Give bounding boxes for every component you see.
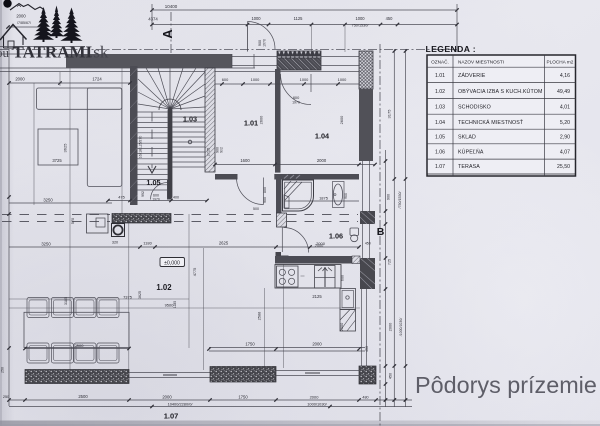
svg-text:600: 600 (153, 194, 159, 198)
svg-text:1125: 1125 (294, 16, 304, 21)
svg-text:2625: 2625 (219, 241, 229, 246)
svg-text:2588: 2588 (258, 312, 262, 320)
svg-text:3250: 3250 (43, 197, 53, 202)
svg-text:1.03: 1.03 (183, 115, 197, 124)
svg-text:B: B (377, 226, 385, 238)
svg-text:1000: 1000 (251, 16, 261, 21)
svg-text:49,49: 49,49 (557, 89, 570, 95)
svg-text:1970: 1970 (152, 198, 159, 202)
svg-text:10400: 10400 (165, 4, 178, 9)
svg-text:2000: 2000 (312, 342, 322, 347)
svg-text:SCHODISKO: SCHODISKO (458, 105, 491, 111)
svg-text:1.04: 1.04 (435, 120, 445, 126)
svg-text:2725: 2725 (207, 148, 211, 156)
svg-text:1.05: 1.05 (435, 135, 445, 141)
svg-text:480: 480 (362, 396, 368, 400)
svg-text:2000: 2000 (162, 395, 172, 400)
svg-text:4,01: 4,01 (560, 105, 570, 111)
svg-text:450: 450 (386, 16, 394, 21)
svg-text:1000: 1000 (300, 77, 309, 82)
svg-text:2000: 2000 (340, 323, 344, 331)
svg-text:LEGENDA :: LEGENDA : (426, 44, 477, 54)
svg-text:450: 450 (365, 242, 371, 246)
svg-text:600: 600 (222, 77, 229, 82)
svg-text:1185: 1185 (173, 301, 177, 308)
svg-text:1724: 1724 (92, 77, 102, 82)
svg-text:3185: 3185 (64, 297, 68, 305)
svg-text:1750: 1750 (245, 342, 255, 347)
svg-text:/1000/1030/: /1000/1030/ (399, 318, 403, 337)
svg-text:3175: 3175 (387, 109, 392, 119)
svg-text:1.04: 1.04 (315, 132, 330, 141)
svg-text:TATRAMI: TATRAMI (13, 43, 93, 62)
svg-text:750/1530/: 750/1530/ (352, 24, 370, 28)
svg-text:570: 570 (71, 218, 75, 224)
svg-text:1.02: 1.02 (156, 283, 172, 292)
svg-text:1000: 1000 (251, 77, 260, 82)
svg-text:2000: 2000 (15, 77, 25, 82)
svg-text:SKLAD: SKLAD (458, 135, 476, 141)
svg-text:2000: 2000 (389, 323, 393, 331)
svg-text:3725: 3725 (52, 158, 62, 163)
svg-text:4,16: 4,16 (560, 73, 570, 79)
svg-text:4775: 4775 (193, 268, 197, 276)
svg-text:Pôdorys prízemie: Pôdorys prízemie (415, 372, 597, 398)
svg-text:7375: 7375 (123, 294, 133, 299)
svg-text:2500: 2500 (78, 394, 88, 399)
svg-text:1000: 1000 (338, 77, 347, 82)
svg-text:4374: 4374 (148, 17, 158, 22)
svg-text:2000: 2000 (317, 158, 327, 163)
svg-text:5,20: 5,20 (560, 120, 570, 126)
svg-text:OBÝVACIA IZBA S KUCH.KÚTOM: OBÝVACIA IZBA S KUCH.KÚTOM (458, 88, 543, 95)
svg-text:KÚPEĽŇA: KÚPEĽŇA (458, 149, 484, 156)
svg-text:1.05: 1.05 (146, 178, 160, 187)
svg-text:900: 900 (258, 40, 262, 46)
svg-text:1.06: 1.06 (435, 150, 445, 156)
svg-text:725: 725 (388, 259, 392, 265)
svg-text:900: 900 (216, 147, 220, 153)
svg-text:250: 250 (1, 367, 5, 373)
svg-text:2125: 2125 (312, 294, 322, 299)
svg-text:.sk: .sk (89, 43, 109, 62)
svg-text:800: 800 (293, 95, 300, 100)
svg-text:1.01: 1.01 (435, 73, 445, 79)
svg-text:16x181,25/270: 16x181,25/270 (139, 136, 143, 159)
svg-text:ZÁDVERIE: ZÁDVERIE (458, 72, 486, 79)
svg-text:1.02: 1.02 (435, 89, 445, 95)
svg-text:1970: 1970 (263, 39, 267, 47)
svg-text:±0,000: ±0,000 (164, 260, 180, 266)
svg-text:TERASA: TERASA (458, 164, 480, 170)
svg-text:3625: 3625 (138, 291, 142, 299)
svg-text:10400/2280/0/: 10400/2280/0/ (168, 402, 194, 407)
svg-text:1180: 1180 (143, 241, 152, 246)
svg-text:1750: 1750 (238, 395, 248, 400)
svg-text:450: 450 (389, 373, 393, 379)
svg-text:800: 800 (263, 187, 267, 193)
svg-text:1.07: 1.07 (435, 164, 445, 170)
svg-text:3250: 3250 (41, 242, 51, 247)
svg-text:OZNAČ.: OZNAČ. (431, 59, 449, 65)
svg-text:1875: 1875 (319, 196, 329, 201)
svg-text:600: 600 (341, 275, 345, 281)
svg-text:2600: 2600 (259, 115, 264, 124)
svg-text:4,07: 4,07 (560, 150, 570, 156)
svg-text:900: 900 (344, 193, 348, 199)
svg-text:A: A (160, 29, 175, 39)
svg-text:450: 450 (365, 346, 369, 352)
svg-text:25,50: 25,50 (557, 164, 570, 170)
svg-text:3625: 3625 (63, 143, 68, 153)
svg-text:1600: 1600 (240, 158, 250, 163)
svg-text:900: 900 (263, 197, 267, 203)
svg-text:250: 250 (3, 395, 9, 399)
svg-text:2500: 2500 (75, 343, 85, 348)
svg-text:902: 902 (220, 147, 224, 153)
svg-text:/7/85/67/: /7/85/67/ (17, 21, 31, 25)
svg-text:1970: 1970 (292, 101, 300, 105)
svg-text:2000: 2000 (16, 14, 26, 19)
svg-text:PLOCHA m2: PLOCHA m2 (547, 60, 574, 65)
svg-text:NAZOV MIESTNOSTI: NAZOV MIESTNOSTI (458, 60, 504, 65)
svg-text:1.07: 1.07 (164, 412, 179, 421)
svg-text:2,90: 2,90 (560, 135, 570, 141)
svg-text:2000: 2000 (315, 243, 324, 248)
svg-text:1.06: 1.06 (329, 232, 343, 241)
svg-text:1000: 1000 (355, 16, 365, 21)
svg-text:900: 900 (387, 194, 391, 200)
svg-text:475: 475 (118, 195, 125, 200)
svg-text:1000/1030/: 1000/1030/ (307, 402, 327, 407)
svg-text:320: 320 (112, 241, 118, 245)
svg-text:2000: 2000 (310, 395, 320, 400)
svg-text:500: 500 (253, 207, 259, 211)
svg-text:2600: 2600 (339, 115, 344, 124)
svg-text:992: 992 (141, 191, 145, 197)
svg-text:1.03: 1.03 (435, 105, 445, 111)
svg-text:ou: ou (0, 45, 9, 60)
svg-text:400: 400 (173, 196, 179, 200)
svg-text:1.01: 1.01 (244, 119, 258, 128)
svg-text:/750/1530/: /750/1530/ (398, 192, 402, 209)
